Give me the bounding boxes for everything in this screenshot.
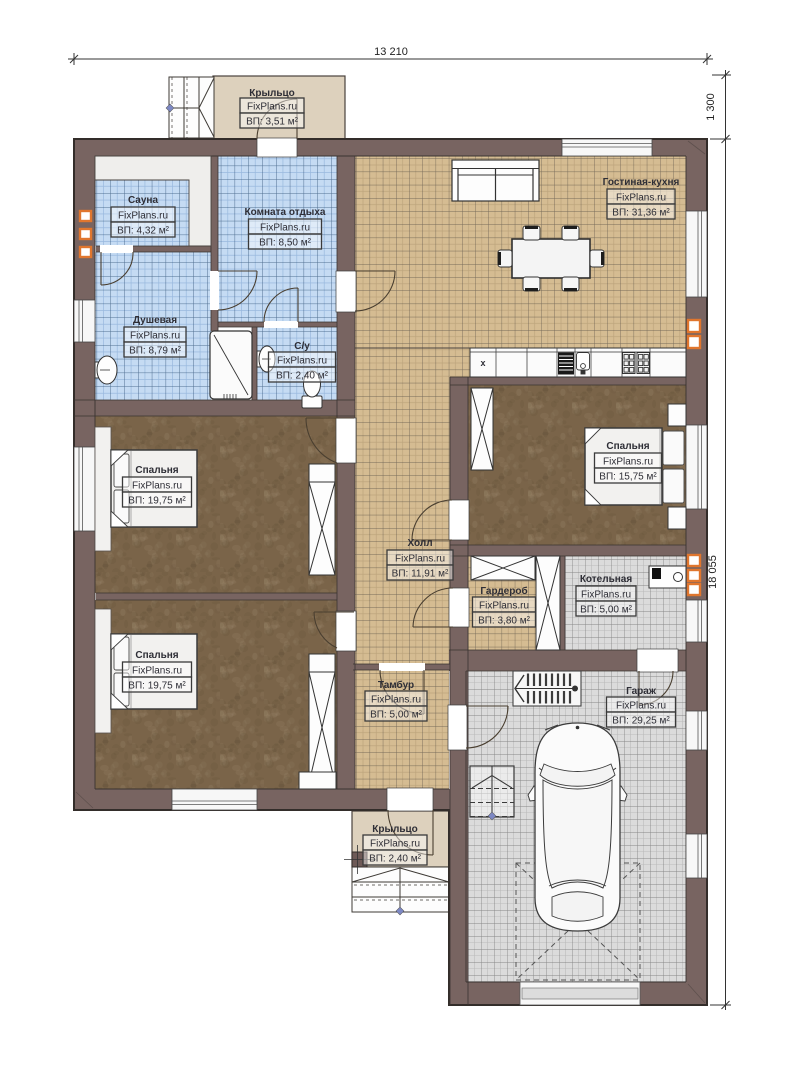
svg-text:Котельная: Котельная xyxy=(580,574,633,585)
svg-text:FixPlans.ru: FixPlans.ru xyxy=(130,331,180,342)
svg-text:ВП: 2,40 м²: ВП: 2,40 м² xyxy=(369,854,422,865)
svg-text:Холл: Холл xyxy=(407,538,432,549)
svg-text:13 210: 13 210 xyxy=(374,46,408,58)
svg-text:ВП: 19,75 м²: ВП: 19,75 м² xyxy=(128,681,186,692)
svg-text:ВП: 5,00 м²: ВП: 5,00 м² xyxy=(580,605,633,616)
svg-text:FixPlans.ru: FixPlans.ru xyxy=(247,102,297,113)
svg-text:Душевая: Душевая xyxy=(133,315,177,326)
svg-text:Тамбур: Тамбур xyxy=(378,679,414,691)
svg-text:ВП: 2,40 м²: ВП: 2,40 м² xyxy=(276,371,329,382)
svg-text:ВП: 3,80 м²: ВП: 3,80 м² xyxy=(478,616,531,627)
svg-text:Спальня: Спальня xyxy=(135,650,178,661)
svg-text:ВП: 31,36 м²: ВП: 31,36 м² xyxy=(612,208,670,219)
svg-text:Гостиная-кухня: Гостиная-кухня xyxy=(603,177,680,188)
svg-text:ВП: 3,51 м²: ВП: 3,51 м² xyxy=(246,117,299,128)
svg-text:ВП: 8,79 м²: ВП: 8,79 м² xyxy=(129,346,182,357)
svg-text:ВП: 15,75 м²: ВП: 15,75 м² xyxy=(599,472,657,483)
svg-text:FixPlans.ru: FixPlans.ru xyxy=(118,211,168,222)
svg-text:Гараж: Гараж xyxy=(626,686,657,697)
svg-text:FixPlans.ru: FixPlans.ru xyxy=(370,839,420,850)
svg-text:18 055: 18 055 xyxy=(707,555,719,589)
svg-text:x: x xyxy=(480,358,485,368)
svg-text:FixPlans.ru: FixPlans.ru xyxy=(260,223,310,234)
svg-text:ВП: 19,75 м²: ВП: 19,75 м² xyxy=(128,496,186,507)
svg-text:FixPlans.ru: FixPlans.ru xyxy=(277,356,327,367)
svg-text:1 300: 1 300 xyxy=(705,93,717,121)
svg-text:FixPlans.ru: FixPlans.ru xyxy=(371,695,421,706)
svg-text:Сауна: Сауна xyxy=(128,195,159,206)
svg-text:ВП: 5,00 м²: ВП: 5,00 м² xyxy=(370,710,423,721)
svg-text:FixPlans.ru: FixPlans.ru xyxy=(616,701,666,712)
svg-text:Крыльцо: Крыльцо xyxy=(372,824,418,835)
svg-text:FixPlans.ru: FixPlans.ru xyxy=(479,601,529,612)
svg-text:FixPlans.ru: FixPlans.ru xyxy=(581,590,631,601)
svg-text:FixPlans.ru: FixPlans.ru xyxy=(616,193,666,204)
svg-text:FixPlans.ru: FixPlans.ru xyxy=(132,481,182,492)
svg-text:Крыльцо: Крыльцо xyxy=(249,88,295,99)
svg-text:ВП: 4,32 м²: ВП: 4,32 м² xyxy=(117,226,170,237)
svg-text:Спальня: Спальня xyxy=(135,465,178,476)
svg-text:Комната отдыха: Комната отдыха xyxy=(245,207,326,218)
svg-text:Спальня: Спальня xyxy=(606,441,649,452)
svg-text:ВП: 29,25 м²: ВП: 29,25 м² xyxy=(612,716,670,727)
svg-text:FixPlans.ru: FixPlans.ru xyxy=(603,457,653,468)
svg-text:ВП: 11,91 м²: ВП: 11,91 м² xyxy=(392,569,449,580)
svg-text:FixPlans.ru: FixPlans.ru xyxy=(395,554,445,565)
svg-text:FixPlans.ru: FixPlans.ru xyxy=(132,666,182,677)
svg-text:С/у: С/у xyxy=(294,341,310,352)
svg-text:ВП: 8,50 м²: ВП: 8,50 м² xyxy=(259,238,312,249)
svg-text:Гардероб: Гардероб xyxy=(480,585,527,597)
